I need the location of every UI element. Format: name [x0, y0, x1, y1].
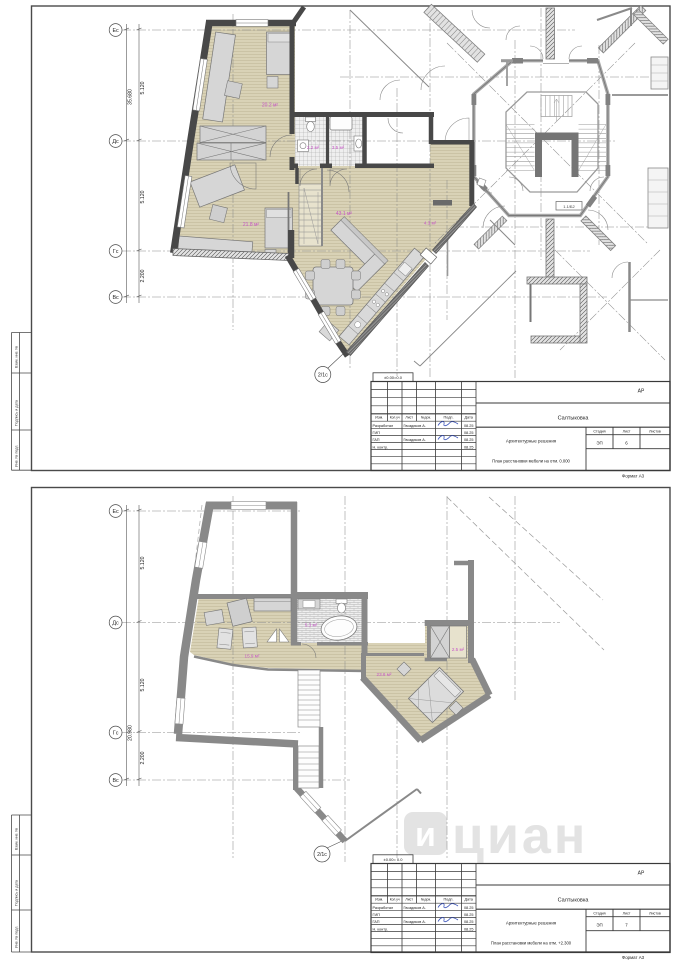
svg-text:Н. контр.: Н. контр.: [373, 445, 389, 449]
svg-text:15.9 м²: 15.9 м²: [245, 654, 260, 659]
svg-text:циан: циан: [452, 807, 588, 865]
svg-text:ГИП: ГИП: [373, 431, 381, 435]
svg-text:Кол.уч: Кол.уч: [390, 897, 400, 901]
svg-text:Подпись и дата: Подпись и дата: [15, 400, 19, 426]
svg-text:Лист: Лист: [623, 430, 631, 434]
svg-text:08.25: 08.25: [464, 927, 474, 931]
svg-text:2.2 м²: 2.2 м²: [307, 145, 320, 150]
svg-text:Ес: Ес: [112, 28, 119, 34]
svg-text:Лист: Лист: [623, 912, 631, 916]
svg-text:Формат А3: Формат А3: [622, 955, 645, 960]
svg-text:Архитектурные решения: Архитектурные решения: [506, 921, 557, 926]
svg-text:Гс: Гс: [113, 249, 119, 255]
svg-text:Изм.: Изм.: [375, 415, 383, 419]
svg-text:Формат А3: Формат А3: [622, 474, 645, 479]
svg-text:5.120: 5.120: [140, 190, 146, 203]
svg-text:Гс: Гс: [113, 731, 119, 737]
svg-text:ГАП: ГАП: [373, 438, 380, 442]
svg-text:Салтыковка: Салтыковка: [558, 416, 590, 422]
svg-text:Гвоздиков А.: Гвоздиков А.: [404, 438, 426, 442]
svg-text:ГИП: ГИП: [373, 913, 381, 917]
svg-text:Стадия: Стадия: [593, 912, 605, 916]
svg-text:5.120: 5.120: [140, 556, 146, 569]
svg-text:Дс: Дс: [112, 139, 119, 145]
svg-text:Взам. инв. №: Взам. инв. №: [15, 828, 19, 850]
svg-text:Листов: Листов: [649, 430, 661, 434]
svg-text:2/1с: 2/1с: [317, 852, 327, 858]
svg-text:1.1/Б2: 1.1/Б2: [563, 204, 575, 209]
svg-text:Подп.: Подп.: [443, 897, 453, 901]
svg-text:20.980: 20.980: [128, 725, 134, 741]
svg-text:08.25: 08.25: [464, 424, 474, 428]
svg-text:21.8 м²: 21.8 м²: [243, 222, 260, 228]
svg-text:08.25: 08.25: [464, 906, 474, 910]
svg-text:АР: АР: [638, 871, 645, 877]
svg-text:Инв. № подл.: Инв. № подл.: [15, 926, 19, 948]
svg-text:4.3 м²: 4.3 м²: [424, 221, 437, 226]
svg-text:Лист: Лист: [405, 897, 413, 901]
svg-text:5.120: 5.120: [140, 81, 146, 94]
svg-text:ГАП: ГАП: [373, 920, 380, 924]
svg-text:Листов: Листов: [649, 912, 661, 916]
svg-text:2.5 м²: 2.5 м²: [452, 647, 465, 652]
svg-text:ЭП: ЭП: [596, 923, 602, 928]
svg-text:Н. контр.: Н. контр.: [373, 927, 389, 931]
svg-text:Дата: Дата: [464, 897, 473, 901]
svg-text:Ес: Ес: [112, 509, 119, 515]
svg-text:Вс: Вс: [112, 295, 119, 301]
svg-text:Подпись и дата: Подпись и дата: [15, 880, 19, 906]
svg-text:Дс: Дс: [112, 621, 119, 627]
svg-text:08.25: 08.25: [464, 438, 474, 442]
svg-text:5.3 м²: 5.3 м²: [305, 623, 318, 628]
svg-text:Разработал: Разработал: [373, 906, 394, 910]
svg-text:08.25: 08.25: [464, 445, 474, 449]
svg-text:Гвоздиков А.: Гвоздиков А.: [404, 906, 426, 910]
svg-text:08.25: 08.25: [464, 431, 474, 435]
svg-text:Салтыковка: Салтыковка: [558, 898, 590, 904]
svg-text:Разработал: Разработал: [373, 424, 394, 428]
svg-text:План расстановки мебели на отм: План расстановки мебели на отм. +2.300: [491, 941, 572, 946]
svg-text:3.5 м²: 3.5 м²: [332, 145, 345, 150]
svg-text:2.200: 2.200: [140, 269, 146, 282]
svg-text:Стадия: Стадия: [593, 430, 605, 434]
svg-text:35.680: 35.680: [128, 89, 134, 105]
svg-text:5.120: 5.120: [140, 678, 146, 691]
svg-text:Кол.уч: Кол.уч: [390, 415, 400, 419]
svg-text:Лист: Лист: [405, 415, 413, 419]
svg-text:Гвоздиков А.: Гвоздиков А.: [404, 424, 426, 428]
svg-text:Дата: Дата: [464, 415, 473, 419]
svg-text:43.1 м²: 43.1 м²: [336, 211, 353, 217]
svg-text:План расстановки мебели на отм: План расстановки мебели на отм. 0.000: [492, 459, 570, 464]
svg-text:Взам. инв. №: Взам. инв. №: [15, 346, 19, 368]
svg-text:08.25: 08.25: [464, 913, 474, 917]
svg-text:08.25: 08.25: [464, 920, 474, 924]
svg-text:№док.: №док.: [421, 897, 431, 901]
svg-text:20.2 м²: 20.2 м²: [262, 103, 279, 109]
svg-text:23.6 м²: 23.6 м²: [377, 672, 392, 677]
svg-text:Гвоздиков А.: Гвоздиков А.: [404, 920, 426, 924]
svg-text:±0.00=0.0: ±0.00=0.0: [384, 375, 403, 380]
svg-text:2/1с: 2/1с: [318, 373, 328, 379]
svg-text:±0.00= 0.0: ±0.00= 0.0: [384, 857, 404, 862]
svg-text:Изм.: Изм.: [375, 897, 383, 901]
svg-text:ЭП: ЭП: [596, 441, 602, 446]
svg-text:Вс: Вс: [112, 778, 119, 784]
svg-text:АР: АР: [638, 389, 645, 395]
svg-text:№док.: №док.: [421, 415, 431, 419]
svg-text:и: и: [415, 816, 436, 854]
svg-text:Инв. № подл.: Инв. № подл.: [15, 445, 19, 467]
svg-text:Архитектурные решения: Архитектурные решения: [506, 439, 557, 444]
svg-text:Подп.: Подп.: [443, 415, 453, 419]
svg-text:2.200: 2.200: [140, 751, 146, 764]
